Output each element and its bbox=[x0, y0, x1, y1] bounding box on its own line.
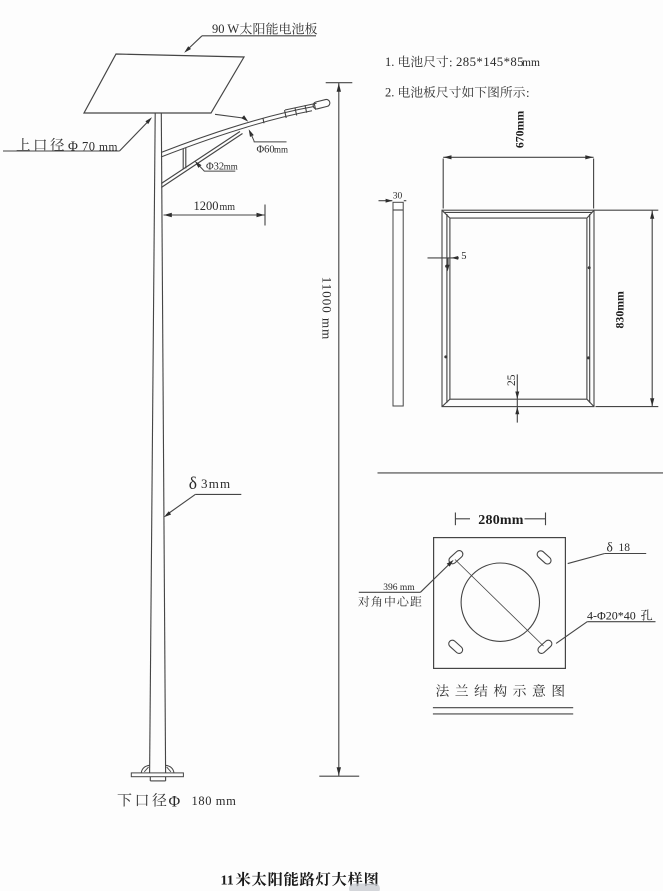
svg-text::: : bbox=[526, 86, 530, 100]
svg-text:280mm: 280mm bbox=[478, 513, 523, 528]
svg-text:mm: mm bbox=[99, 142, 118, 154]
svg-text:1.: 1. bbox=[385, 55, 394, 69]
svg-text:mm: mm bbox=[274, 145, 288, 155]
svg-text:mm: mm bbox=[220, 202, 236, 213]
svg-text:mm: mm bbox=[224, 162, 238, 172]
svg-text:2.: 2. bbox=[385, 86, 394, 100]
svg-text:396 mm: 396 mm bbox=[383, 583, 415, 593]
svg-text:25: 25 bbox=[506, 374, 518, 386]
svg-text:Φ60: Φ60 bbox=[257, 145, 275, 156]
svg-text:90 W: 90 W bbox=[212, 22, 239, 36]
svg-text:5: 5 bbox=[461, 251, 466, 262]
svg-text:11: 11 bbox=[221, 874, 234, 889]
svg-text:830mm: 830mm bbox=[613, 291, 627, 329]
svg-text:30: 30 bbox=[393, 191, 403, 201]
svg-text:Φ: Φ bbox=[169, 794, 181, 811]
svg-text:11000 mm: 11000 mm bbox=[319, 277, 334, 341]
svg-text:Φ32: Φ32 bbox=[206, 162, 224, 173]
svg-text:3mm: 3mm bbox=[201, 476, 231, 491]
svg-text:δ: δ bbox=[607, 540, 613, 555]
svg-text::: : bbox=[449, 55, 453, 69]
svg-text:180 mm: 180 mm bbox=[192, 794, 237, 808]
svg-text:18: 18 bbox=[619, 542, 631, 554]
svg-text:mm: mm bbox=[522, 57, 540, 69]
svg-text:δ: δ bbox=[189, 473, 197, 493]
svg-text:670mm: 670mm bbox=[513, 111, 527, 149]
svg-text:285*145*85: 285*145*85 bbox=[456, 55, 524, 69]
svg-text:1200: 1200 bbox=[194, 199, 219, 213]
svg-text:4-Φ20*40: 4-Φ20*40 bbox=[587, 608, 636, 622]
